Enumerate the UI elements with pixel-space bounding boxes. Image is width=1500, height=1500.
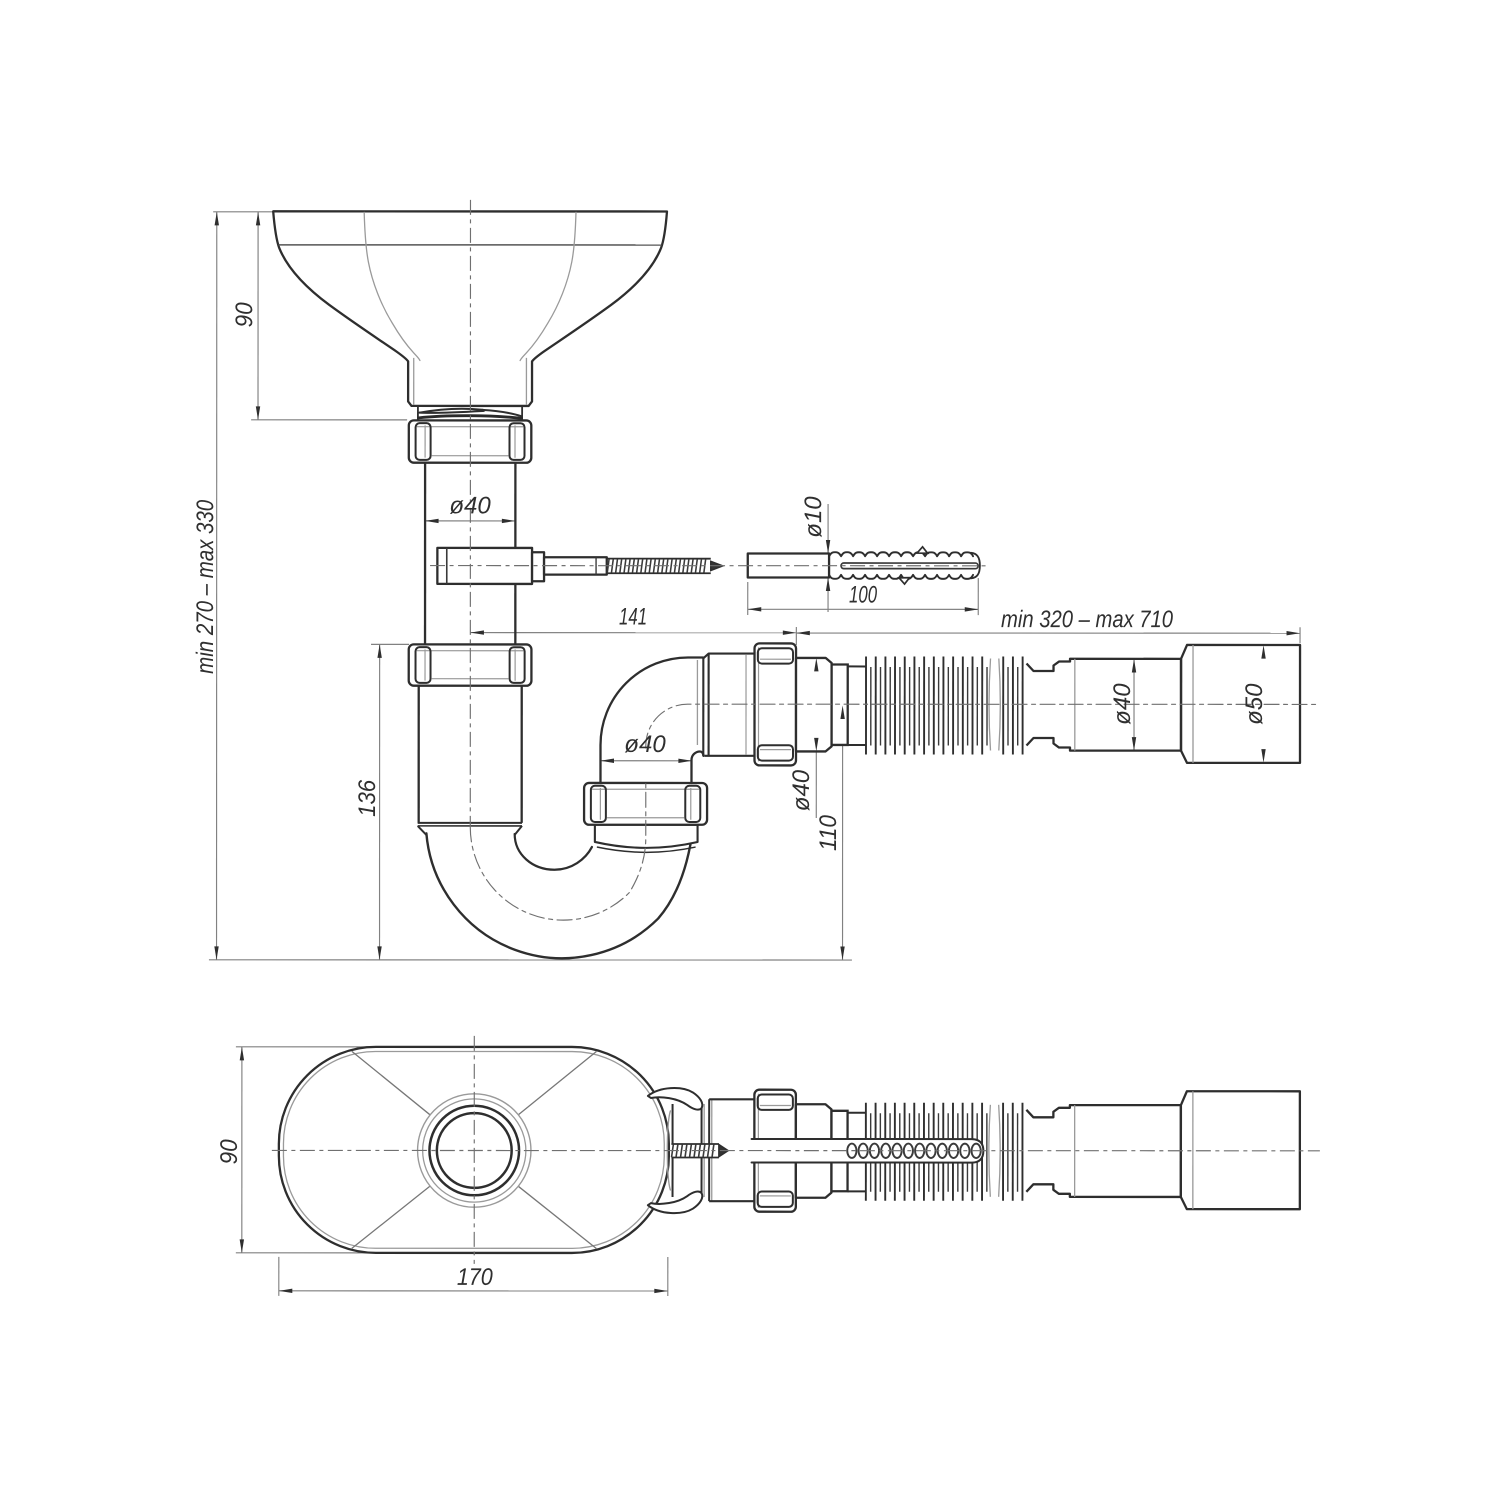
svg-text:min 320 – max 710: min 320 – max 710 bbox=[1001, 606, 1174, 633]
svg-text:ø40: ø40 bbox=[788, 769, 815, 811]
svg-text:ø40: ø40 bbox=[449, 492, 491, 519]
svg-text:ø40: ø40 bbox=[1109, 683, 1136, 725]
svg-text:90: 90 bbox=[216, 1139, 243, 1165]
svg-text:136: 136 bbox=[354, 779, 381, 817]
svg-text:min 270 – max 330: min 270 – max 330 bbox=[192, 499, 219, 674]
svg-text:170: 170 bbox=[457, 1264, 494, 1291]
svg-text:90: 90 bbox=[231, 302, 258, 328]
svg-text:100: 100 bbox=[849, 582, 877, 609]
svg-text:ø40: ø40 bbox=[624, 731, 666, 758]
svg-text:ø50: ø50 bbox=[1241, 683, 1268, 725]
svg-text:110: 110 bbox=[815, 814, 842, 851]
svg-text:141: 141 bbox=[619, 603, 647, 630]
svg-text:ø10: ø10 bbox=[800, 496, 827, 538]
